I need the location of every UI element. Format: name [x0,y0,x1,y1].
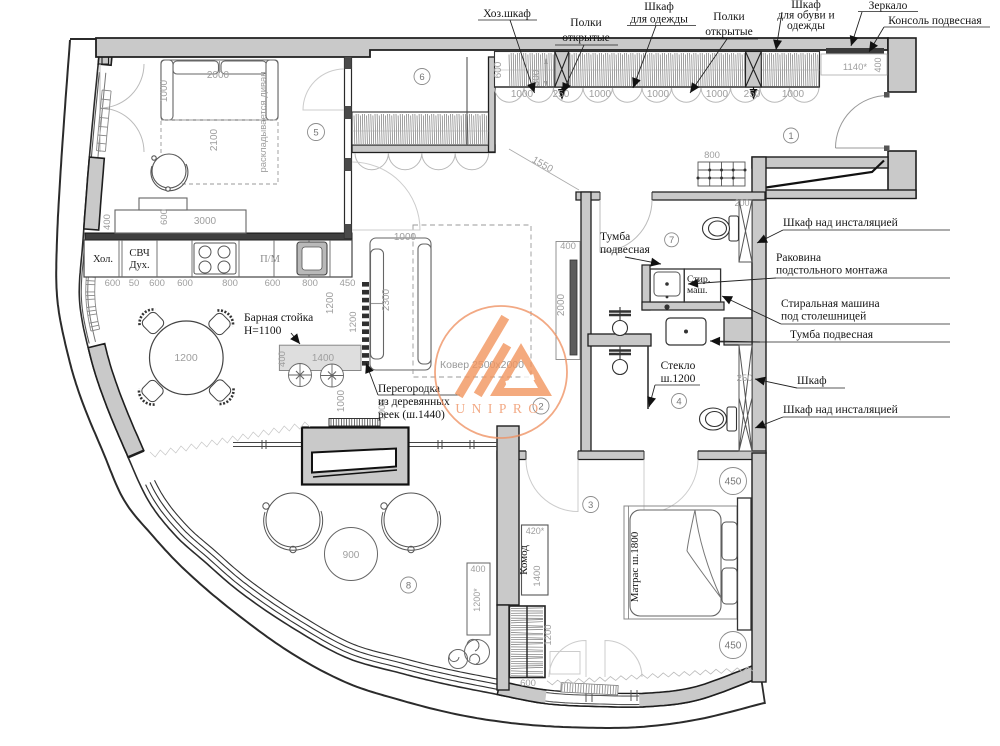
svg-text:из деревянных: из деревянных [378,396,450,408]
svg-text:Комод: Комод [518,545,530,575]
svg-text:400: 400 [470,564,485,574]
svg-text:Хоз.шкаф: Хоз.шкаф [483,8,531,20]
svg-text:1200: 1200 [174,352,198,364]
svg-text:600: 600 [105,278,121,289]
svg-text:400: 400 [560,241,576,252]
svg-text:Шкаф: Шкаф [644,1,674,13]
svg-text:600: 600 [493,61,504,78]
svg-text:900: 900 [343,550,360,561]
svg-text:раскладывается диван: раскладывается диван [258,71,269,172]
svg-text:Шкаф: Шкаф [797,375,827,387]
svg-text:одежды: одежды [787,20,825,32]
svg-text:5: 5 [313,127,318,138]
svg-text:Тумба подвесная: Тумба подвесная [790,329,874,341]
svg-text:2300: 2300 [381,288,392,311]
svg-text:открытые: открытые [705,26,753,38]
svg-text:подвесная: подвесная [600,244,651,256]
svg-text:7: 7 [669,235,674,246]
svg-text:Дух.: Дух. [129,260,149,271]
svg-text:250: 250 [744,89,761,100]
svg-text:2100: 2100 [209,128,220,151]
svg-text:Стекло: Стекло [661,360,696,372]
svg-text:1: 1 [788,131,793,142]
svg-text:8: 8 [406,580,411,591]
svg-text:4: 4 [676,396,681,407]
svg-text:800: 800 [704,150,720,161]
svg-text:420*: 420* [526,526,545,536]
svg-text:400: 400 [277,351,288,367]
svg-text:Тумба: Тумба [600,231,630,243]
svg-text:Раковина: Раковина [776,252,821,264]
svg-text:250: 250 [553,89,570,100]
svg-text:Перегородка: Перегородка [378,383,440,395]
svg-text:реек (ш.1440): реек (ш.1440) [378,409,445,421]
svg-text:800: 800 [222,278,238,289]
svg-text:UNIPRO: UNIPRO [455,401,544,416]
svg-text:под столешницей: под столешницей [781,311,866,323]
svg-text:Стиральная машина: Стиральная машина [781,298,880,310]
svg-text:3000: 3000 [194,216,217,227]
svg-text:3: 3 [588,500,593,511]
svg-text:1200: 1200 [325,291,336,314]
svg-text:6: 6 [419,72,424,83]
svg-text:400: 400 [873,57,883,72]
svg-text:Хол.: Хол. [93,254,113,265]
svg-text:2000: 2000 [207,70,230,81]
svg-text:250: 250 [737,373,753,384]
svg-text:200: 200 [734,198,749,208]
svg-text:1000: 1000 [589,89,612,100]
svg-text:400: 400 [102,214,113,230]
svg-text:Н=1100: Н=1100 [244,325,282,337]
svg-text:450: 450 [340,278,356,289]
svg-text:П/М: П/М [260,254,281,265]
svg-text:2000: 2000 [556,293,567,316]
svg-text:1000: 1000 [394,232,417,243]
svg-text:Зеркало: Зеркало [869,0,908,12]
svg-text:600: 600 [177,278,193,289]
svg-text:1200: 1200 [348,311,359,332]
svg-text:600: 600 [265,278,281,289]
svg-text:50: 50 [129,278,140,289]
svg-text:1400: 1400 [312,353,335,364]
svg-text:800: 800 [302,278,318,289]
svg-text:600: 600 [520,678,536,689]
svg-text:для одежды: для одежды [630,14,688,26]
svg-text:1000: 1000 [159,79,170,102]
svg-text:1000: 1000 [706,89,729,100]
svg-text:1000: 1000 [336,389,347,412]
svg-text:1200*: 1200* [472,588,482,612]
svg-text:Барная стойка: Барная стойка [244,312,313,324]
svg-text:1000: 1000 [782,89,805,100]
svg-text:1000: 1000 [511,89,534,100]
svg-text:Полки: Полки [570,17,601,29]
svg-text:450: 450 [725,477,742,488]
svg-text:Консоль подвесная: Консоль подвесная [888,15,982,27]
svg-text:1140*: 1140* [843,62,867,73]
svg-text:Матрас ш.1800: Матрас ш.1800 [629,531,641,602]
svg-text:1400: 1400 [532,565,543,586]
svg-text:ш.1200: ш.1200 [661,373,696,385]
svg-text:450: 450 [725,641,742,652]
svg-text:открытые: открытые [562,32,610,44]
svg-text:СВЧ: СВЧ [129,248,149,259]
svg-text:600: 600 [149,278,165,289]
svg-text:подстольного монтажа: подстольного монтажа [776,265,887,277]
svg-text:600: 600 [159,209,170,225]
svg-text:Шкаф над инсталяцией: Шкаф над инсталяцией [783,404,898,416]
svg-text:Полки: Полки [713,11,744,23]
svg-text:Шкаф над инсталяцией: Шкаф над инсталяцией [783,217,898,229]
svg-text:1200: 1200 [543,624,554,645]
svg-text:1000: 1000 [647,89,670,100]
